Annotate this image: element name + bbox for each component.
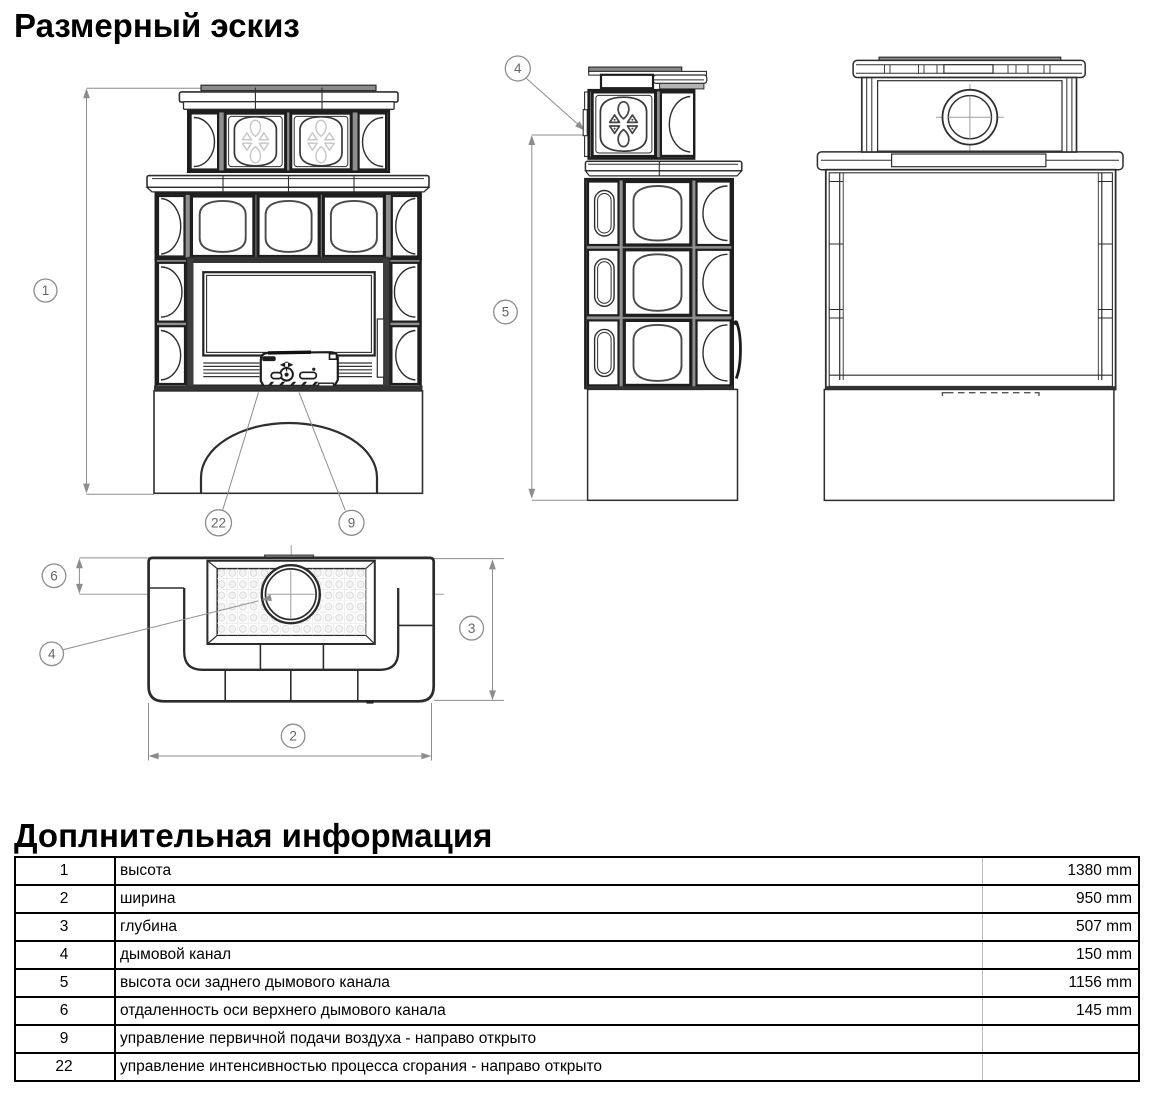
svg-text:1: 1 — [42, 283, 50, 298]
svg-text:9: 9 — [348, 516, 356, 531]
svg-text:4: 4 — [48, 647, 56, 662]
svg-text:6: 6 — [50, 569, 58, 584]
svg-text:5: 5 — [502, 305, 510, 320]
svg-text:3: 3 — [468, 621, 476, 636]
svg-text:22: 22 — [211, 516, 226, 531]
svg-text:2: 2 — [289, 729, 297, 744]
svg-text:4: 4 — [514, 61, 522, 76]
